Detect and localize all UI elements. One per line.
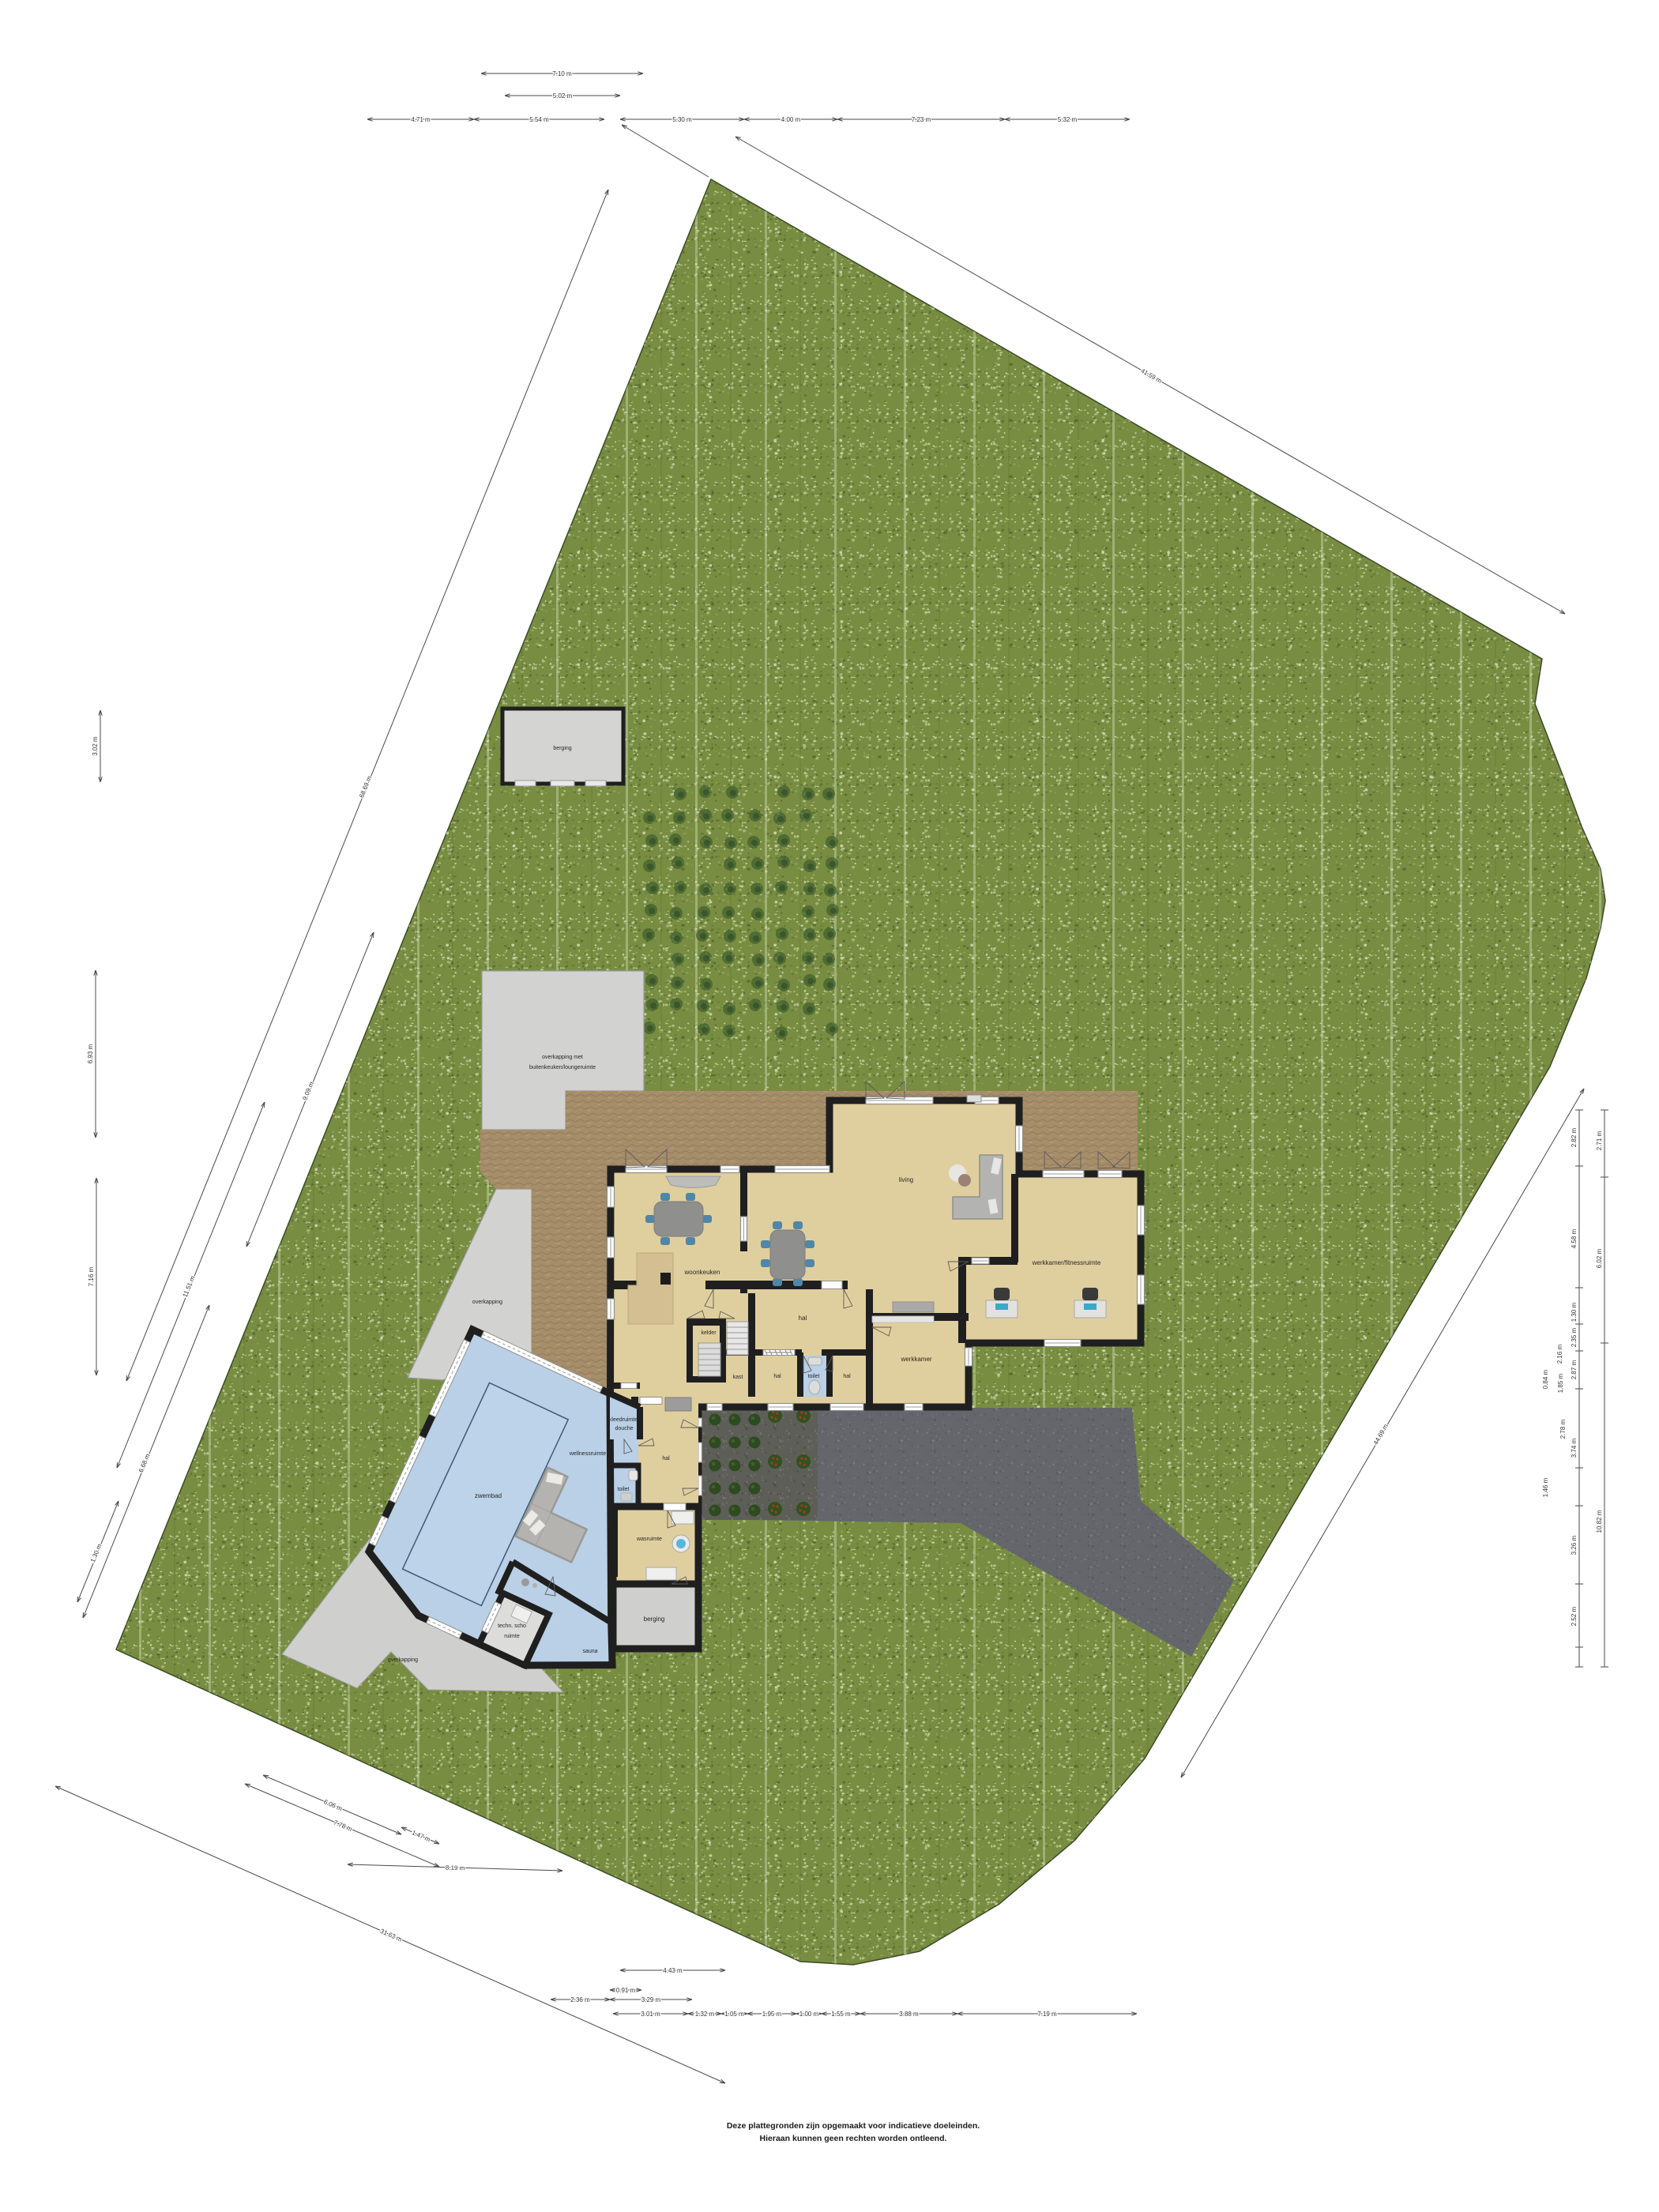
svg-text:wellnessruimte: wellnessruimte bbox=[569, 1451, 606, 1457]
svg-text:hal: hal bbox=[843, 1374, 851, 1379]
svg-text:1.00 m: 1.00 m bbox=[799, 2011, 819, 2018]
svg-text:toilet: toilet bbox=[618, 1487, 630, 1492]
svg-text:6.93 m: 6.93 m bbox=[87, 1044, 94, 1063]
svg-text:8.19 m: 8.19 m bbox=[446, 1864, 465, 1872]
svg-text:1.05 m: 1.05 m bbox=[724, 2011, 744, 2018]
svg-text:overkapping met: overkapping met bbox=[542, 1055, 583, 1060]
svg-text:7.16 m: 7.16 m bbox=[88, 1266, 95, 1286]
svg-text:wasruimte: wasruimte bbox=[636, 1537, 662, 1542]
svg-text:3.02 m: 3.02 m bbox=[92, 736, 99, 756]
svg-text:4.71 m: 4.71 m bbox=[411, 116, 431, 123]
svg-text:4.00 m: 4.00 m bbox=[781, 116, 801, 123]
svg-text:7.19 m: 7.19 m bbox=[1037, 2011, 1057, 2018]
svg-text:2.71 m: 2.71 m bbox=[1596, 1130, 1603, 1150]
svg-text:2.87 m: 2.87 m bbox=[1571, 1360, 1578, 1379]
svg-text:living: living bbox=[899, 1176, 913, 1183]
svg-text:2.35 m: 2.35 m bbox=[1571, 1327, 1578, 1347]
svg-text:techn. scho: techn. scho bbox=[498, 1623, 526, 1629]
svg-text:werkkamer: werkkamer bbox=[900, 1356, 931, 1363]
svg-text:Deze plattegronden zijn opgema: Deze plattegronden zijn opgemaakt voor i… bbox=[727, 2121, 980, 2131]
svg-text:1.32 m: 1.32 m bbox=[695, 2011, 715, 2018]
svg-text:sauna: sauna bbox=[582, 1649, 597, 1654]
svg-text:hal: hal bbox=[662, 1456, 670, 1461]
svg-text:werkkamer/fitnessruimte: werkkamer/fitnessruimte bbox=[1032, 1259, 1101, 1266]
svg-text:woonkeuken: woonkeuken bbox=[684, 1269, 720, 1276]
svg-text:3.29 m: 3.29 m bbox=[641, 1996, 661, 2003]
svg-text:3.26 m: 3.26 m bbox=[1571, 1535, 1578, 1555]
svg-text:5.54 m: 5.54 m bbox=[529, 116, 549, 123]
svg-text:overkapping: overkapping bbox=[388, 1657, 418, 1663]
svg-text:5.30 m: 5.30 m bbox=[672, 116, 692, 123]
svg-text:buitenkeuken/loungeruimte: buitenkeuken/loungeruimte bbox=[529, 1065, 596, 1070]
svg-text:kleedruimte/: kleedruimte/ bbox=[609, 1417, 639, 1423]
svg-text:3.88 m: 3.88 m bbox=[899, 2011, 919, 2018]
svg-text:berging: berging bbox=[553, 746, 571, 751]
svg-text:7.23 m: 7.23 m bbox=[912, 116, 931, 123]
svg-text:1.30 m: 1.30 m bbox=[1571, 1302, 1578, 1322]
svg-text:1.85 m: 1.85 m bbox=[1557, 1373, 1564, 1393]
svg-text:kast: kast bbox=[733, 1375, 743, 1380]
svg-text:0.91 m: 0.91 m bbox=[616, 1987, 636, 1994]
svg-text:1.46 m: 1.46 m bbox=[1542, 1477, 1549, 1497]
svg-text:ruimte: ruimte bbox=[504, 1634, 520, 1639]
svg-text:overkapping: overkapping bbox=[472, 1300, 502, 1305]
svg-text:hal: hal bbox=[799, 1315, 807, 1322]
svg-text:2.52 m: 2.52 m bbox=[1571, 1606, 1578, 1626]
svg-text:hal: hal bbox=[773, 1374, 781, 1379]
svg-text:0.84 m: 0.84 m bbox=[1542, 1369, 1549, 1389]
svg-text:5.32 m: 5.32 m bbox=[1058, 116, 1078, 123]
svg-text:10.82 m: 10.82 m bbox=[1596, 1510, 1603, 1533]
svg-text:zwembad: zwembad bbox=[475, 1492, 502, 1499]
svg-text:toilet: toilet bbox=[808, 1374, 820, 1379]
svg-text:berging: berging bbox=[644, 1616, 665, 1623]
svg-text:4.58 m: 4.58 m bbox=[1571, 1228, 1578, 1248]
svg-text:douche: douche bbox=[615, 1426, 634, 1431]
svg-text:3.74 m: 3.74 m bbox=[1571, 1438, 1578, 1458]
svg-text:Hieraan kunnen geen rechten wo: Hieraan kunnen geen rechten worden ontle… bbox=[760, 2134, 947, 2143]
svg-text:1.95 m: 1.95 m bbox=[762, 2011, 782, 2018]
svg-text:7.10 m: 7.10 m bbox=[552, 70, 572, 77]
svg-text:2.78 m: 2.78 m bbox=[1559, 1419, 1567, 1439]
svg-text:4.43 m: 4.43 m bbox=[663, 1967, 683, 1974]
svg-text:5.02 m: 5.02 m bbox=[553, 92, 573, 100]
svg-text:2.82 m: 2.82 m bbox=[1571, 1127, 1578, 1147]
svg-text:1.55 m: 1.55 m bbox=[831, 2011, 851, 2018]
svg-text:2.16 m: 2.16 m bbox=[1556, 1344, 1563, 1364]
svg-text:2.36 m: 2.36 m bbox=[570, 1996, 590, 2003]
svg-text:kelder: kelder bbox=[701, 1330, 717, 1336]
svg-text:6.02 m: 6.02 m bbox=[1596, 1248, 1603, 1268]
svg-text:3.01 m: 3.01 m bbox=[641, 2011, 660, 2018]
